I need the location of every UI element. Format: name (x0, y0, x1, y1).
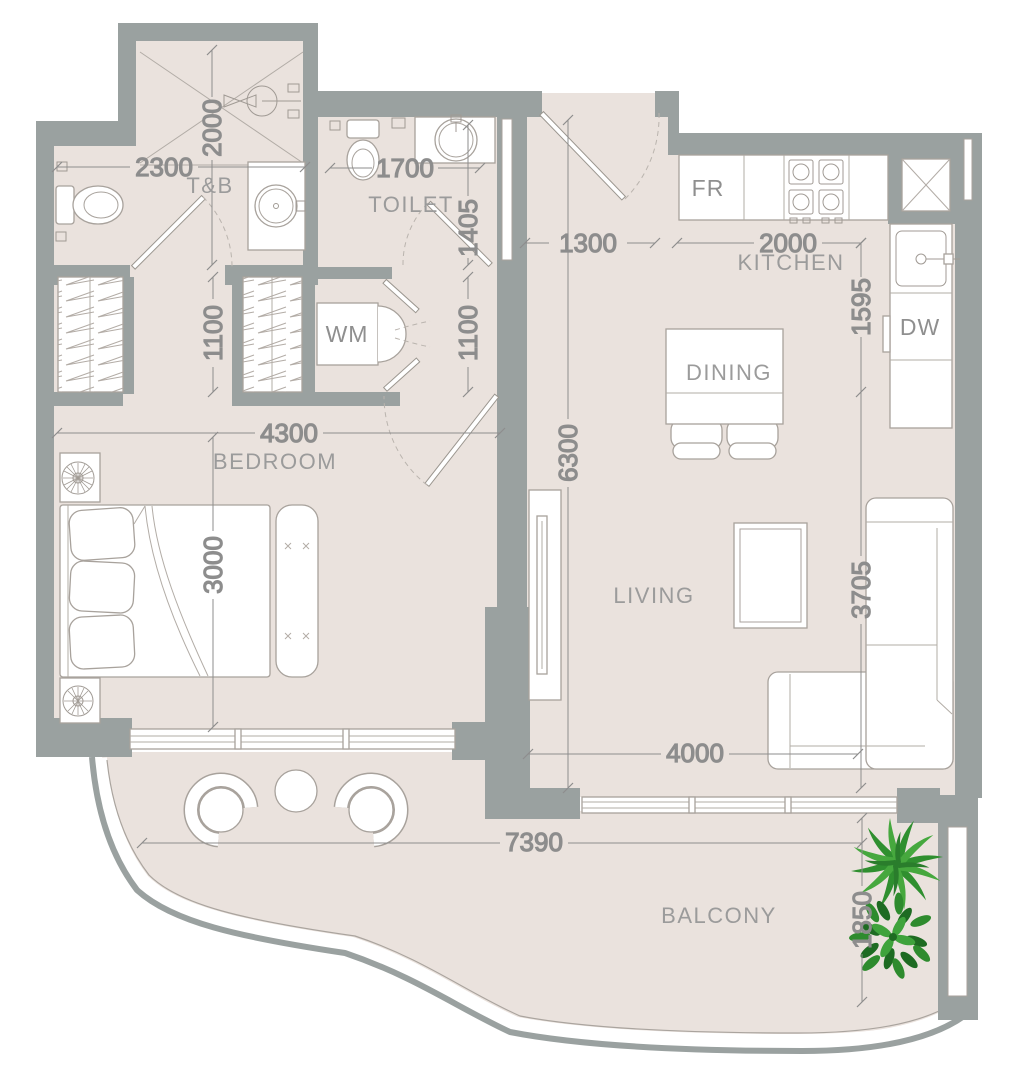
kitchen-counter-top: FR (679, 155, 888, 223)
dishwasher-label: DW (900, 314, 940, 340)
label-living: LIVING (613, 583, 694, 608)
kitchen-counter-right: DW (883, 224, 960, 428)
tb-toilet-bowl (56, 186, 123, 224)
ceiling-vent-bottom (60, 678, 100, 723)
right-wall-window (964, 139, 972, 200)
svg-text:1100: 1100 (453, 305, 483, 361)
balcony-side-window (948, 827, 967, 996)
bedroom-bench (276, 505, 318, 677)
floorplan-canvas: WM (0, 0, 1015, 1080)
fridge-label: FR (692, 175, 725, 201)
svg-text:1100: 1100 (198, 305, 228, 361)
bedroom-window (130, 729, 455, 749)
living-window (582, 797, 897, 813)
washing-machine-label: WM (326, 321, 369, 347)
label-toilet: TOILET (368, 192, 454, 217)
dining-chair (727, 419, 778, 459)
label-bedroom: BEDROOM (213, 449, 337, 474)
svg-text:1405: 1405 (453, 199, 483, 257)
svg-text:4300: 4300 (260, 418, 318, 448)
wardrobe-right (243, 277, 302, 392)
washing-machine: WM (317, 303, 406, 365)
floorplan-page: WM (0, 0, 1015, 1080)
label-tb: T&B (186, 173, 233, 198)
svg-text:1700: 1700 (376, 153, 434, 183)
svg-text:3705: 3705 (846, 561, 876, 619)
svg-text:2300: 2300 (135, 152, 193, 182)
label-dining: DINING (686, 360, 772, 385)
tb-sink (248, 162, 305, 250)
bed (60, 505, 270, 677)
svg-text:1595: 1595 (846, 278, 876, 336)
balcony-table (275, 770, 317, 812)
service-shaft (902, 159, 950, 211)
pillow (69, 560, 136, 613)
svg-text:6300: 6300 (553, 424, 583, 482)
dishwasher-handle (883, 316, 890, 352)
svg-text:3000: 3000 (198, 536, 228, 594)
dining-chair (671, 419, 722, 459)
coffee-table (734, 523, 807, 628)
label-kitchen: KITCHEN (737, 250, 844, 275)
svg-text:7390: 7390 (505, 827, 563, 857)
label-balcony: BALCONY (661, 903, 777, 928)
svg-text:4000: 4000 (666, 738, 724, 768)
svg-text:2000: 2000 (197, 99, 227, 157)
tv-unit (529, 490, 561, 700)
svg-text:1850: 1850 (847, 891, 877, 949)
toilet-wc (347, 120, 379, 180)
duct-slot (502, 119, 512, 260)
pillow (69, 614, 136, 669)
ceiling-vent-top (60, 453, 100, 502)
pillow (68, 507, 135, 561)
wardrobe-left (58, 277, 123, 392)
